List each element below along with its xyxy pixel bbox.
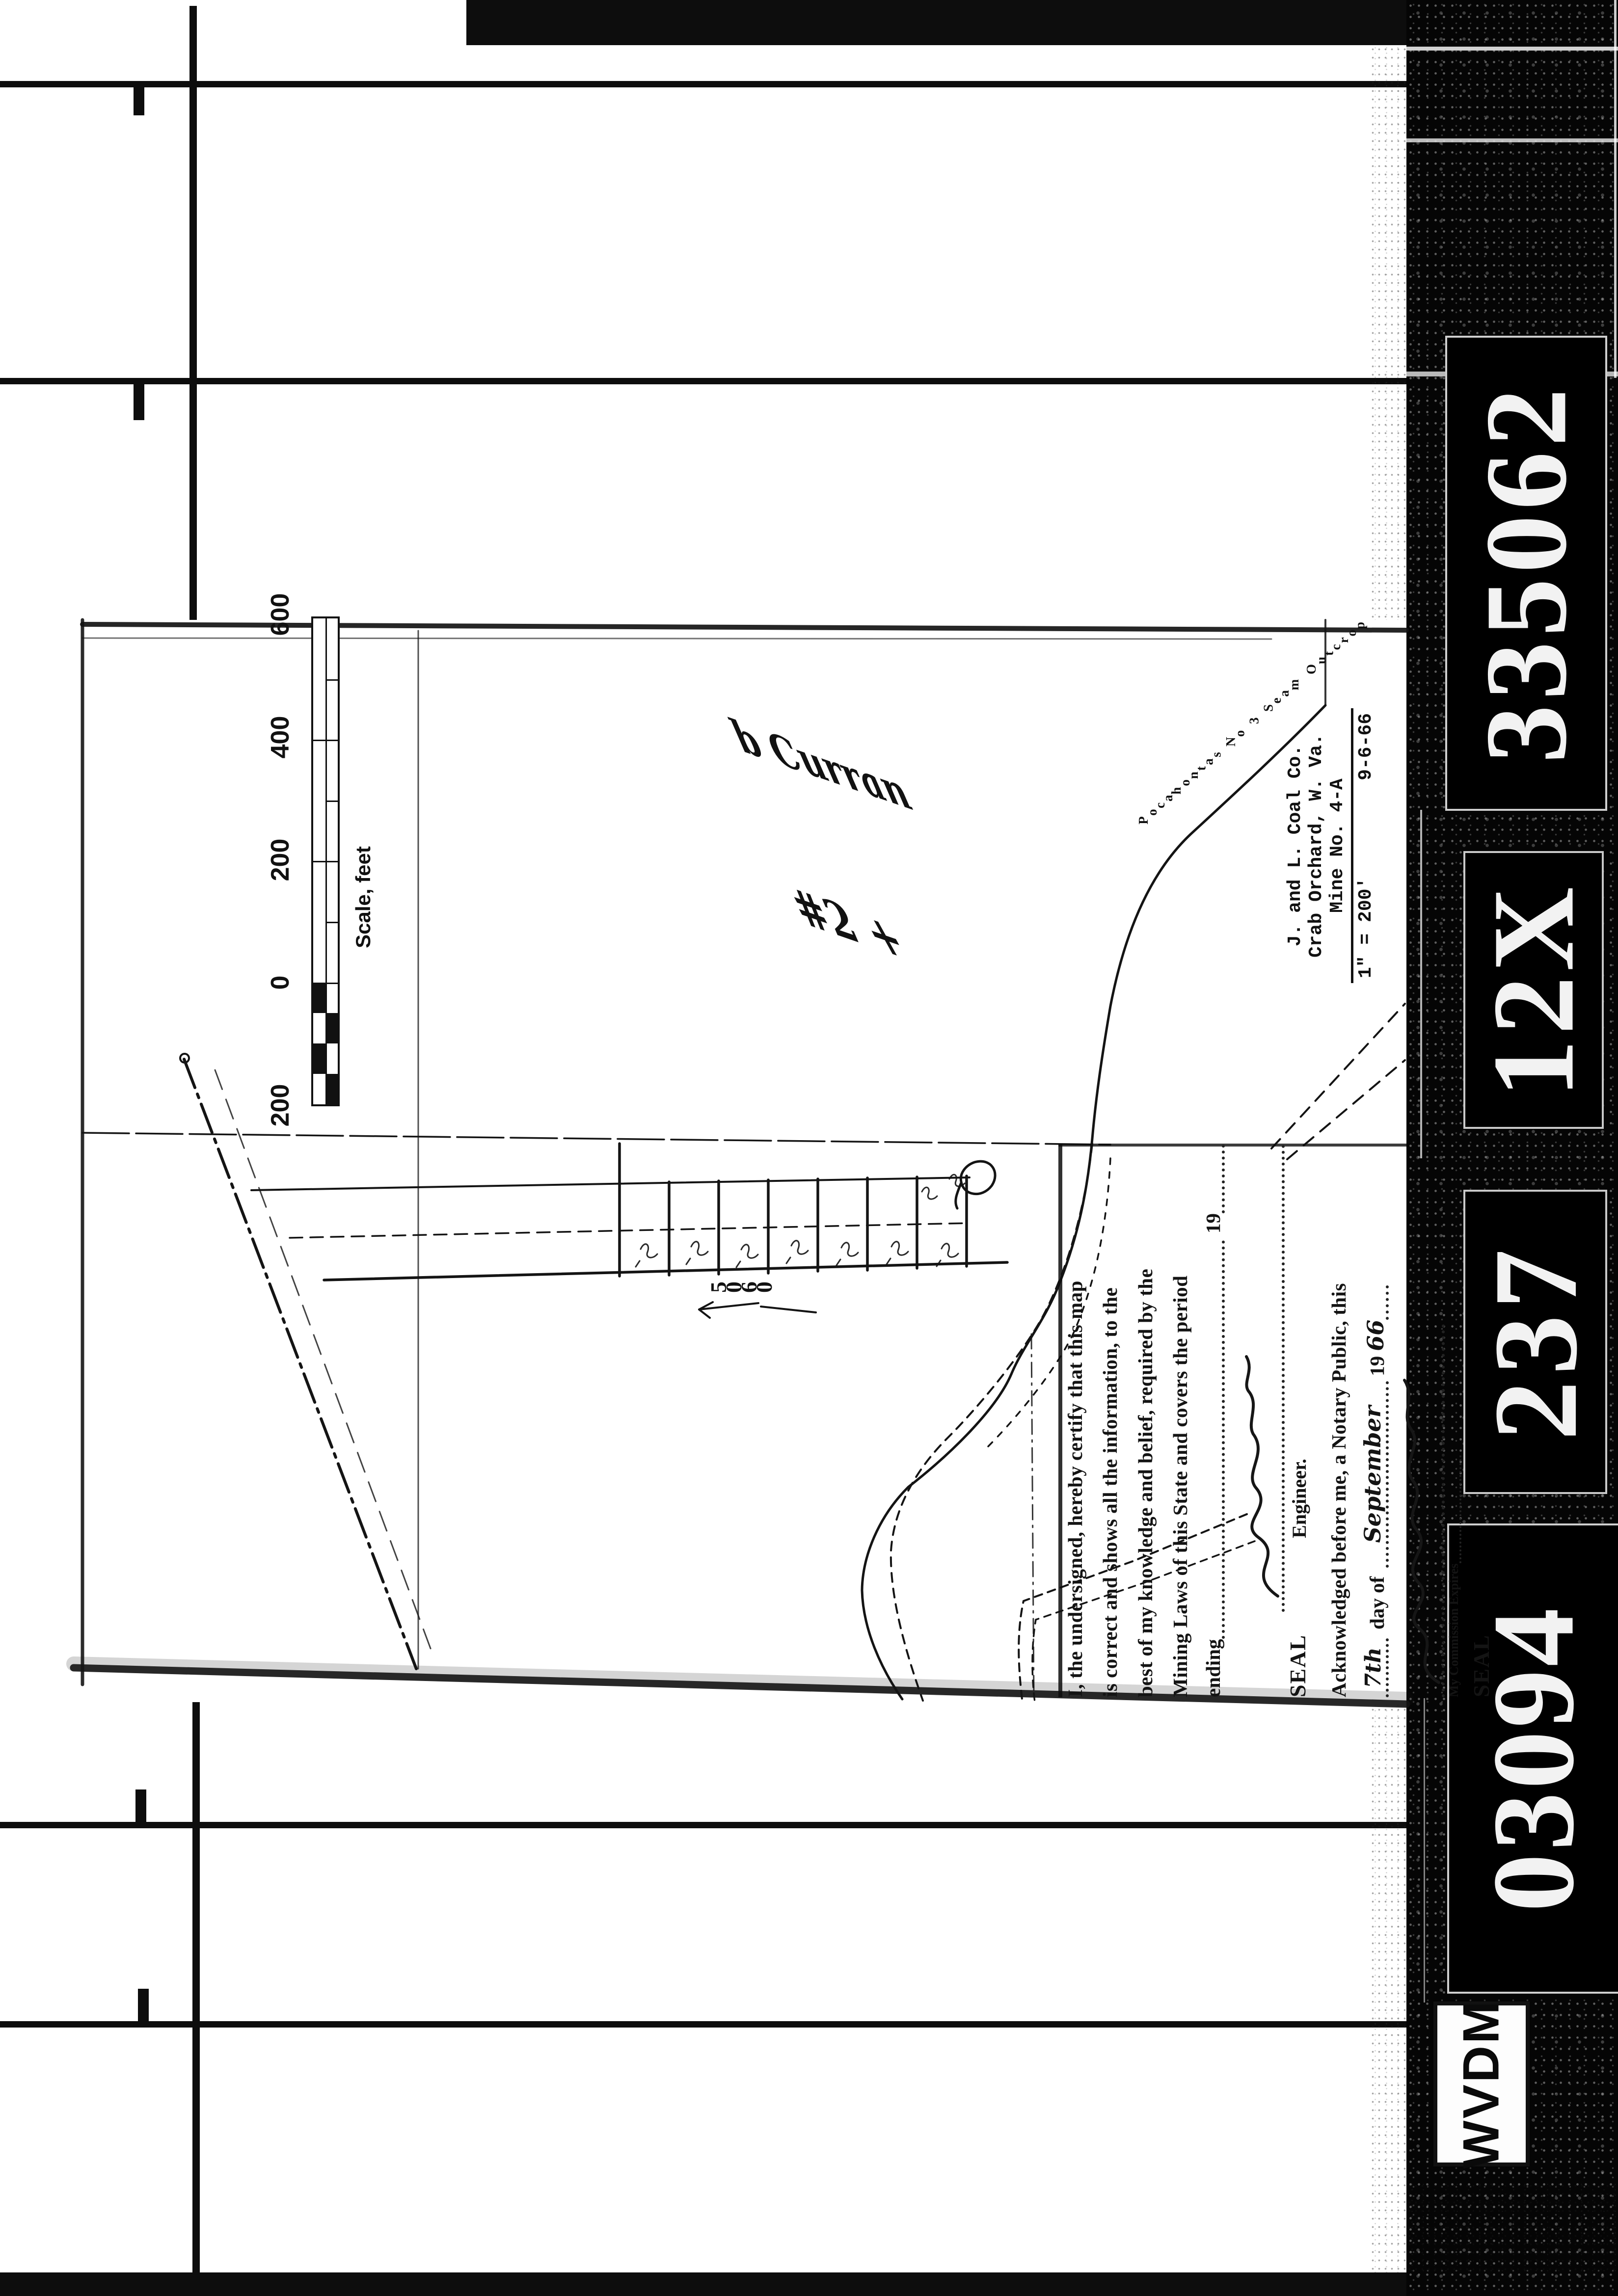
- year-prefix: 19: [1201, 1213, 1225, 1233]
- certification-area: I, the undersigned, hereby certify that …: [1061, 1145, 1406, 1697]
- mine-number: Mine No. 4-A: [1327, 708, 1348, 983]
- map-date: 9-6-66: [1355, 713, 1376, 780]
- engineer-signature-line: [1240, 1145, 1285, 1612]
- ack-year-prefix: 19: [1365, 1356, 1389, 1376]
- cert-line: is correct and shows all the information…: [1096, 1145, 1125, 1697]
- engineer-signature: [1235, 1347, 1289, 1602]
- commission-label: My Commission Expires: [1447, 1563, 1461, 1697]
- scale-caption: Scale, feet: [350, 833, 377, 961]
- company-location: Crab Orchard, W. Va.: [1306, 708, 1327, 983]
- microfilm-scan: 335062 12X 237 03094 WVDM: [0, 0, 1618, 2296]
- title-block-area: J. and L. Coal Co. Crab Orchard, W. Va. …: [1194, 799, 1469, 892]
- scale-tick-label: 0: [266, 951, 295, 1015]
- scale-tick-label: 400: [266, 705, 295, 769]
- day-handwritten: 7th: [1361, 1648, 1386, 1688]
- cert-line: best of my knowledge and belief, require…: [1131, 1145, 1160, 1697]
- cert-line: I, the undersigned, hereby certify that …: [1061, 1145, 1090, 1697]
- notary-signature-line: [1400, 1324, 1445, 1697]
- seal-label: SEAL: [1468, 1145, 1494, 1697]
- acknowledged-line: Acknowledged before me, a Notary Public,…: [1324, 1145, 1353, 1697]
- dotted-leader: [1207, 1145, 1225, 1213]
- scale-tick-label: 600: [266, 583, 295, 646]
- scale-tick-label: 200: [266, 828, 295, 892]
- notary-signature: [1394, 1373, 1449, 1687]
- seal-label: SEAL: [1285, 1634, 1311, 1697]
- dotted-leader: [1451, 1455, 1461, 1563]
- dotted-leader: [1207, 1240, 1225, 1639]
- ack-year-handwritten: 66: [1362, 1320, 1389, 1351]
- title-block: J. and L. Coal Co. Crab Orchard, W. Va. …: [1285, 708, 1378, 983]
- month-handwritten: September: [1359, 1406, 1386, 1543]
- dotted-leader: [1371, 1285, 1389, 1320]
- engineer-label: Engineer.: [1288, 1145, 1311, 1538]
- elevation-label: 5060: [713, 1274, 770, 1300]
- ending-label: ending: [1201, 1639, 1225, 1698]
- certification-block: I, the undersigned, hereby certify that …: [1061, 1145, 1406, 1697]
- company-name: J. and L. Coal Co.: [1285, 708, 1306, 983]
- cert-line: Mining Laws of this State and covers the…: [1166, 1145, 1195, 1697]
- scale-bar: [311, 616, 340, 1106]
- day-of-label: day of: [1365, 1576, 1389, 1629]
- scale-tick-label: 200: [266, 1073, 295, 1137]
- map-scale: 1" = 200': [1355, 878, 1376, 978]
